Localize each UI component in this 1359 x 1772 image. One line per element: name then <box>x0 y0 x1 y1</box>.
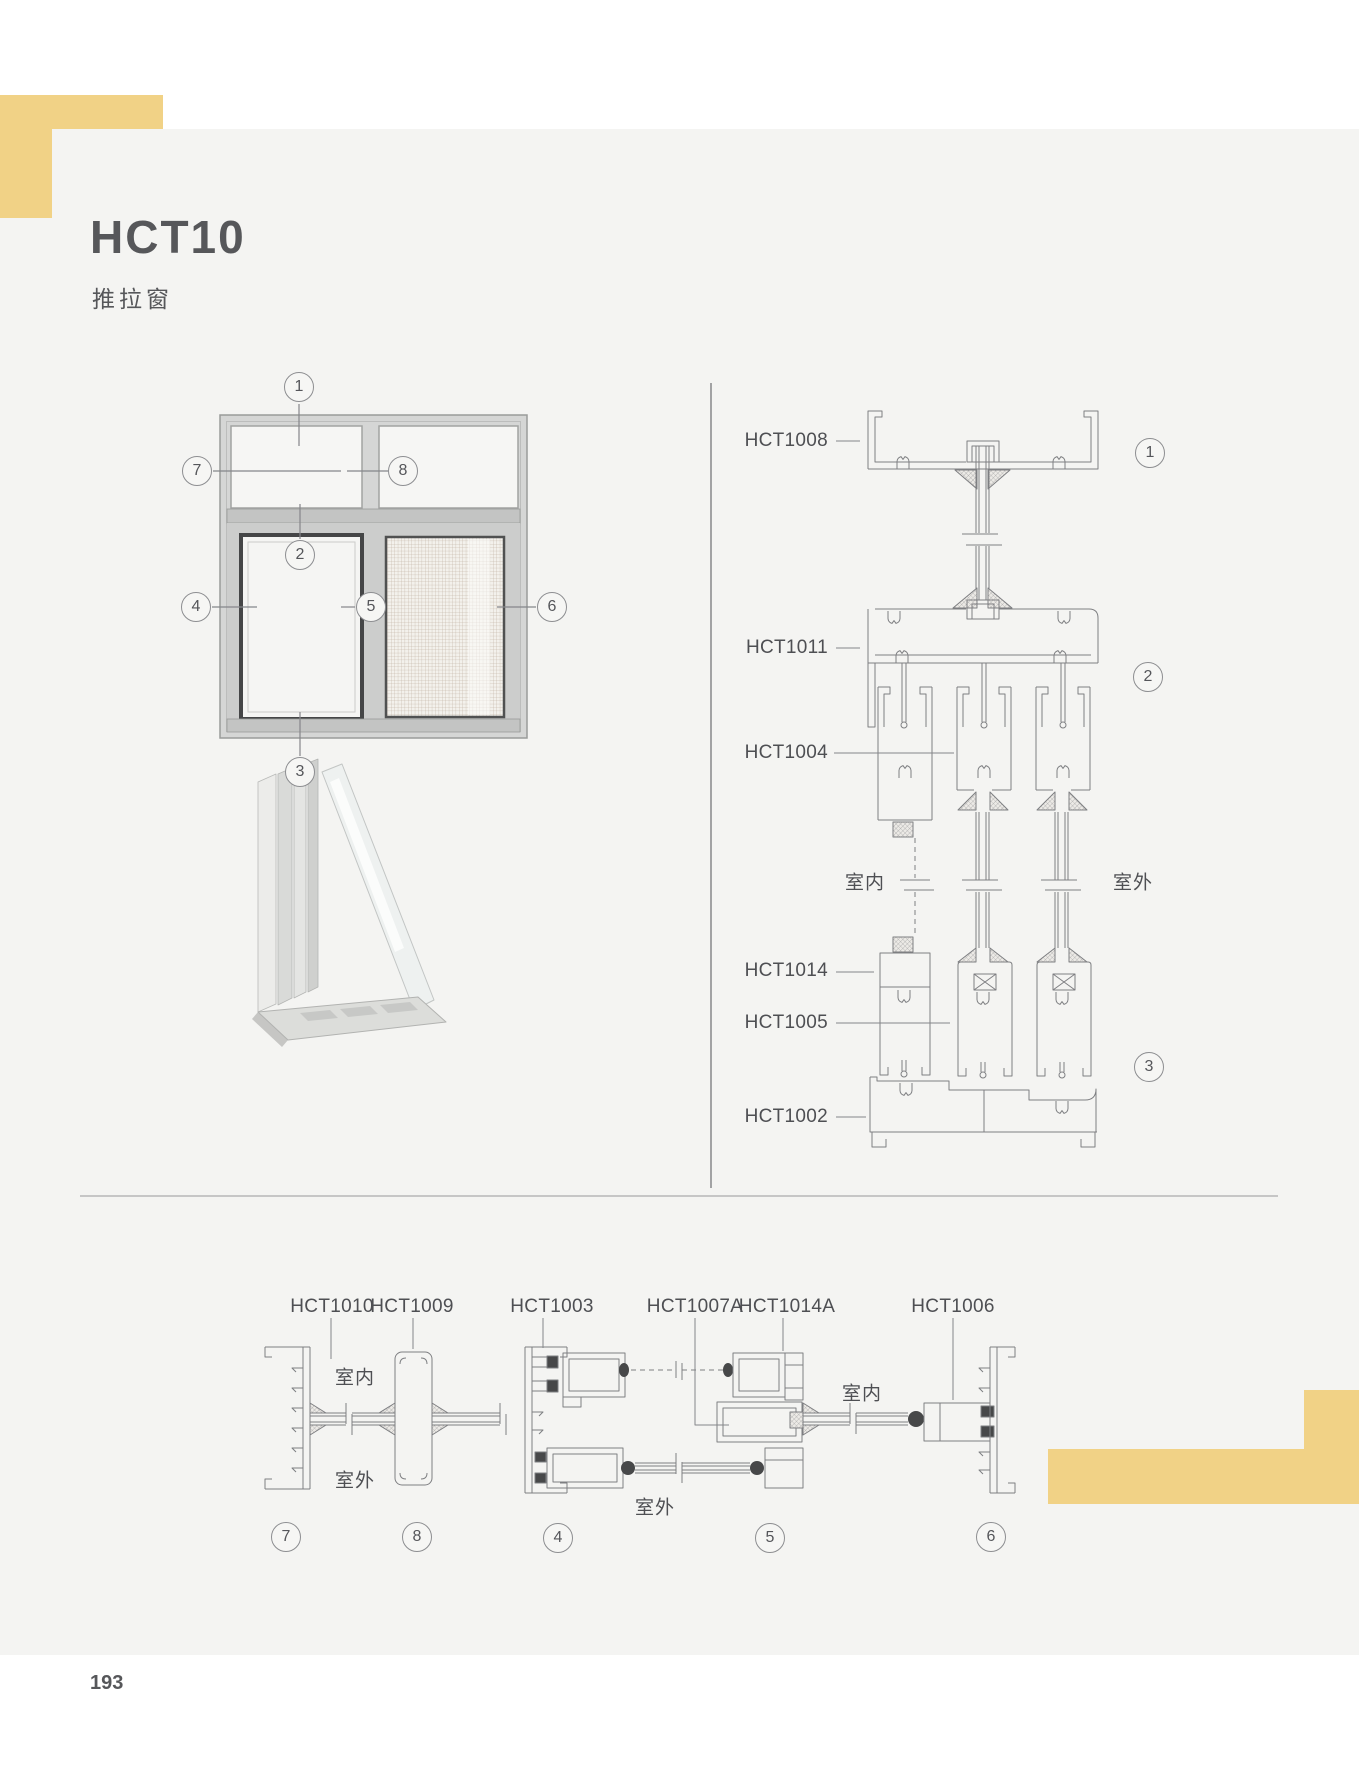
room-label-outdoor: 室外 <box>335 1466 375 1493</box>
profile-3d-render <box>252 759 446 1047</box>
room-label-outdoor: 室外 <box>1113 868 1153 895</box>
catalog-page: HCT10 推拉窗 193 <box>0 0 1359 1772</box>
callout-8: 8 <box>388 456 418 486</box>
room-label-indoor: 室内 <box>842 1379 882 1406</box>
callout-7: 7 <box>271 1522 301 1552</box>
callout-2: 2 <box>1133 662 1163 692</box>
label-hct1004: HCT1004 <box>708 742 828 764</box>
label-hct1005: HCT1005 <box>708 1012 828 1034</box>
callout-3: 3 <box>285 757 315 787</box>
callout-4: 4 <box>181 592 211 622</box>
room-label-indoor: 室内 <box>335 1363 375 1390</box>
label-hct1006: HCT1006 <box>911 1296 994 1318</box>
callout-1: 1 <box>284 372 314 402</box>
callout-6: 6 <box>976 1522 1006 1552</box>
label-hct1002: HCT1002 <box>708 1106 828 1128</box>
insect-screen-panel <box>386 537 504 717</box>
label-hct1014: HCT1014 <box>708 960 828 982</box>
vsection-label-leaders <box>834 441 954 1117</box>
technical-drawing-layer <box>0 0 1359 1772</box>
label-hct1011: HCT1011 <box>708 637 828 659</box>
label-hct1003: HCT1003 <box>510 1296 593 1318</box>
label-hct1007a: HCT1007A <box>647 1296 743 1318</box>
label-hct1014a: HCT1014A <box>739 1296 835 1318</box>
vertical-section-drawing <box>711 383 1098 1188</box>
room-label-outdoor: 室外 <box>635 1493 675 1520</box>
callout-7: 7 <box>182 456 212 486</box>
callout-3: 3 <box>1134 1052 1164 1082</box>
callout-6: 6 <box>537 592 567 622</box>
callout-4: 4 <box>543 1523 573 1553</box>
horizontal-section-drawing <box>80 1196 1278 1493</box>
callout-1: 1 <box>1135 438 1165 468</box>
label-hct1008: HCT1008 <box>708 430 828 452</box>
room-label-indoor: 室内 <box>845 868 885 895</box>
callout-5: 5 <box>755 1523 785 1553</box>
elevation-drawing <box>212 404 536 756</box>
label-hct1010: HCT1010 <box>290 1296 373 1318</box>
callout-5: 5 <box>356 592 386 622</box>
label-hct1009: HCT1009 <box>370 1296 453 1318</box>
callout-8: 8 <box>402 1522 432 1552</box>
callout-2: 2 <box>285 540 315 570</box>
